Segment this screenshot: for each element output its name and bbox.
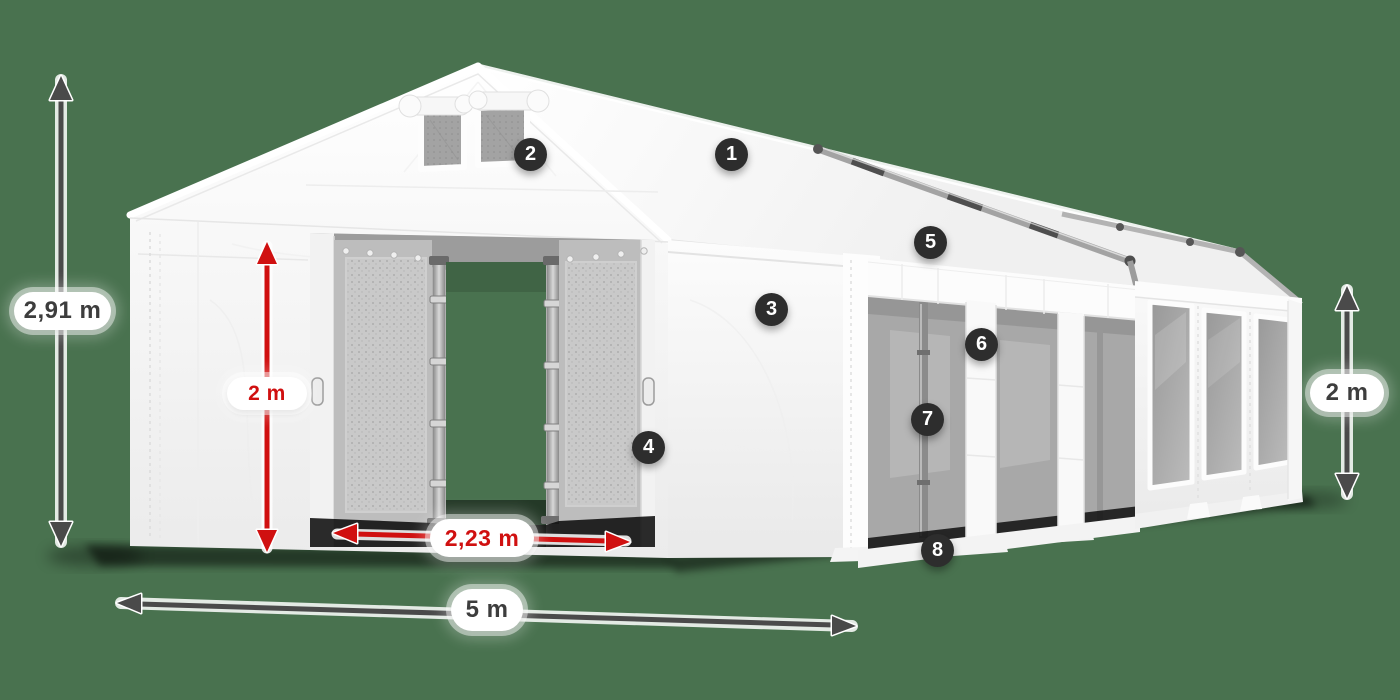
tent-dimension-diagram: 2,91 m 2 m 2,23 m 5 m 2 m 1 2 3 4 5 6 7 … [0,0,1400,700]
dimension-label-door-width: 2,23 m [430,519,534,557]
left-door-leaf [310,233,432,547]
dimension-label-width: 5 m [451,589,523,631]
tent-illustration [0,0,1400,700]
door-handle-right [643,378,654,405]
side-window [1150,302,1290,488]
callout-badge-6: 6 [965,328,998,361]
callout-badge-7: 7 [911,403,944,436]
callout-badge-8: 8 [921,534,954,567]
callout-badge-3: 3 [755,293,788,326]
pass-through-opening [446,262,546,547]
callout-badge-5: 5 [914,226,947,259]
side-wall-panel [668,240,892,562]
callout-badge-4: 4 [632,431,665,464]
callout-badge-2: 2 [514,138,547,171]
window-panels-section [1135,281,1303,529]
front-doorway [310,233,655,547]
right-door-leaf [559,233,655,547]
door-handle-left [312,378,323,405]
callout-badge-1: 1 [715,138,748,171]
dimension-label-total-height: 2,91 m [14,292,111,330]
dimension-label-side-height: 2 m [1310,374,1384,412]
dimension-label-door-height: 2 m [227,377,307,410]
